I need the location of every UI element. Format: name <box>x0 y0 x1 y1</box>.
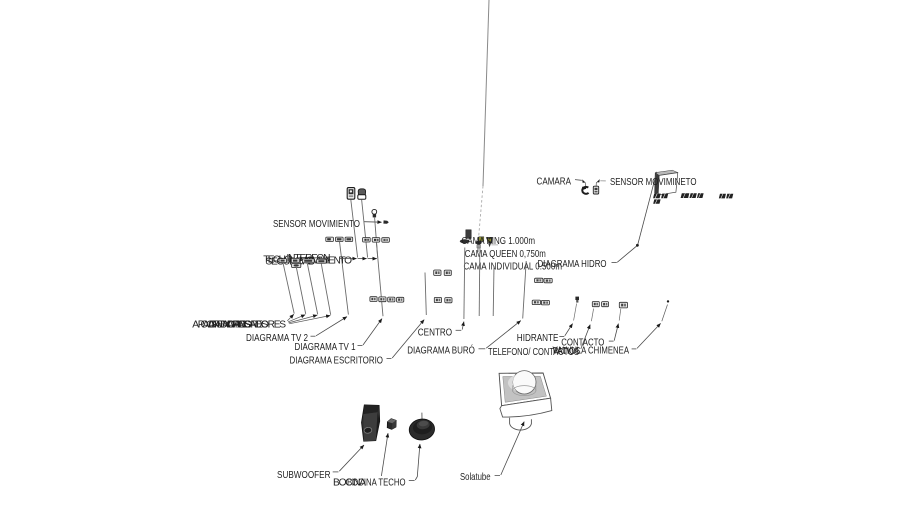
svg-text:DIAGRAMA ESCRITORIO: DIAGRAMA ESCRITORIO <box>290 355 384 366</box>
svg-text:SENSOR MOVIMIENTO: SENSOR MOVIMIENTO <box>273 219 360 230</box>
svg-text:CAMA QUEEN 0,750m: CAMA QUEEN 0,750m <box>465 249 546 260</box>
svg-text:CAMARA: CAMARA <box>537 176 572 187</box>
svg-text:DIAGRAMA TV 1: DIAGRAMA TV 1 <box>295 342 356 353</box>
svg-text:DIAGRAMA HIDRO: DIAGRAMA HIDRO <box>538 259 607 270</box>
svg-text:DIAGRAMA BURÓ: DIAGRAMA BURÓ <box>407 343 475 356</box>
svg-text:CENTRO: CENTRO <box>418 328 452 339</box>
svg-text:BOCINA TECHO: BOCINA TECHO <box>347 477 406 488</box>
svg-text:SUBWOOFER: SUBWOOFER <box>277 470 331 481</box>
svg-text:HIDRANTE: HIDRANTE <box>517 333 559 344</box>
svg-text:APAGADORES: APAGADORES <box>227 319 286 330</box>
svg-text:Solatube: Solatube <box>460 472 491 483</box>
svg-text:CAMA KING 1.000m: CAMA KING 1.000m <box>462 236 536 247</box>
svg-text:SENSOR MOVIMINETO: SENSOR MOVIMINETO <box>610 177 697 188</box>
